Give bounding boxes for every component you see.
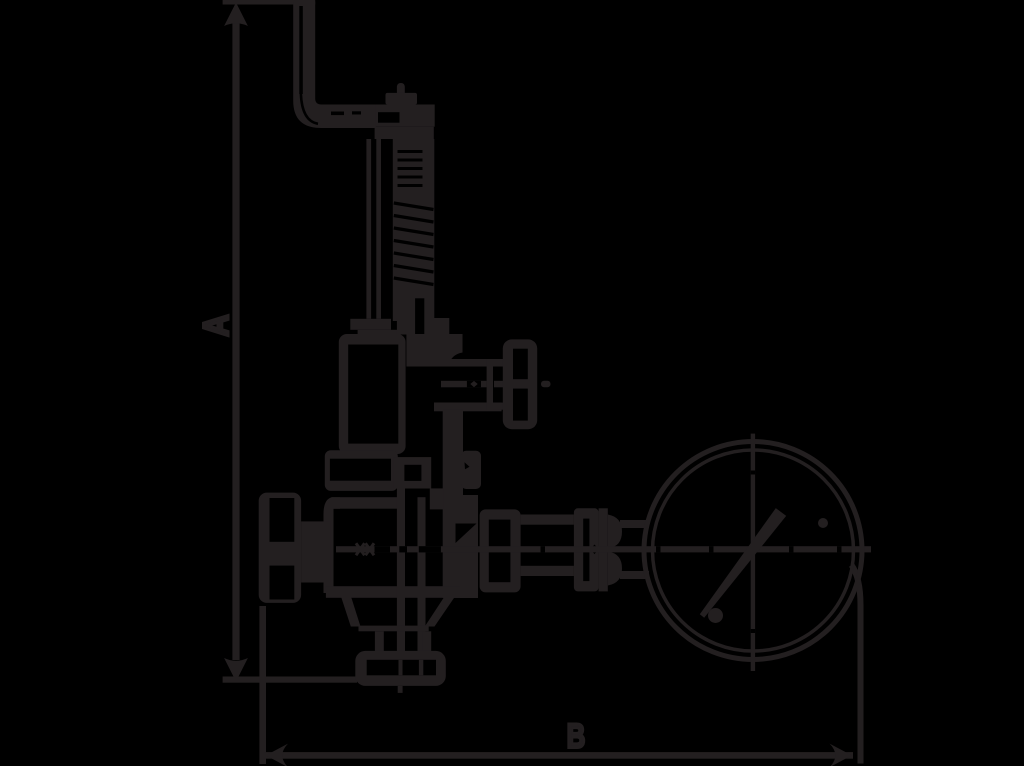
svg-text:A: A [197,315,236,337]
svg-text:B: B [567,718,586,756]
